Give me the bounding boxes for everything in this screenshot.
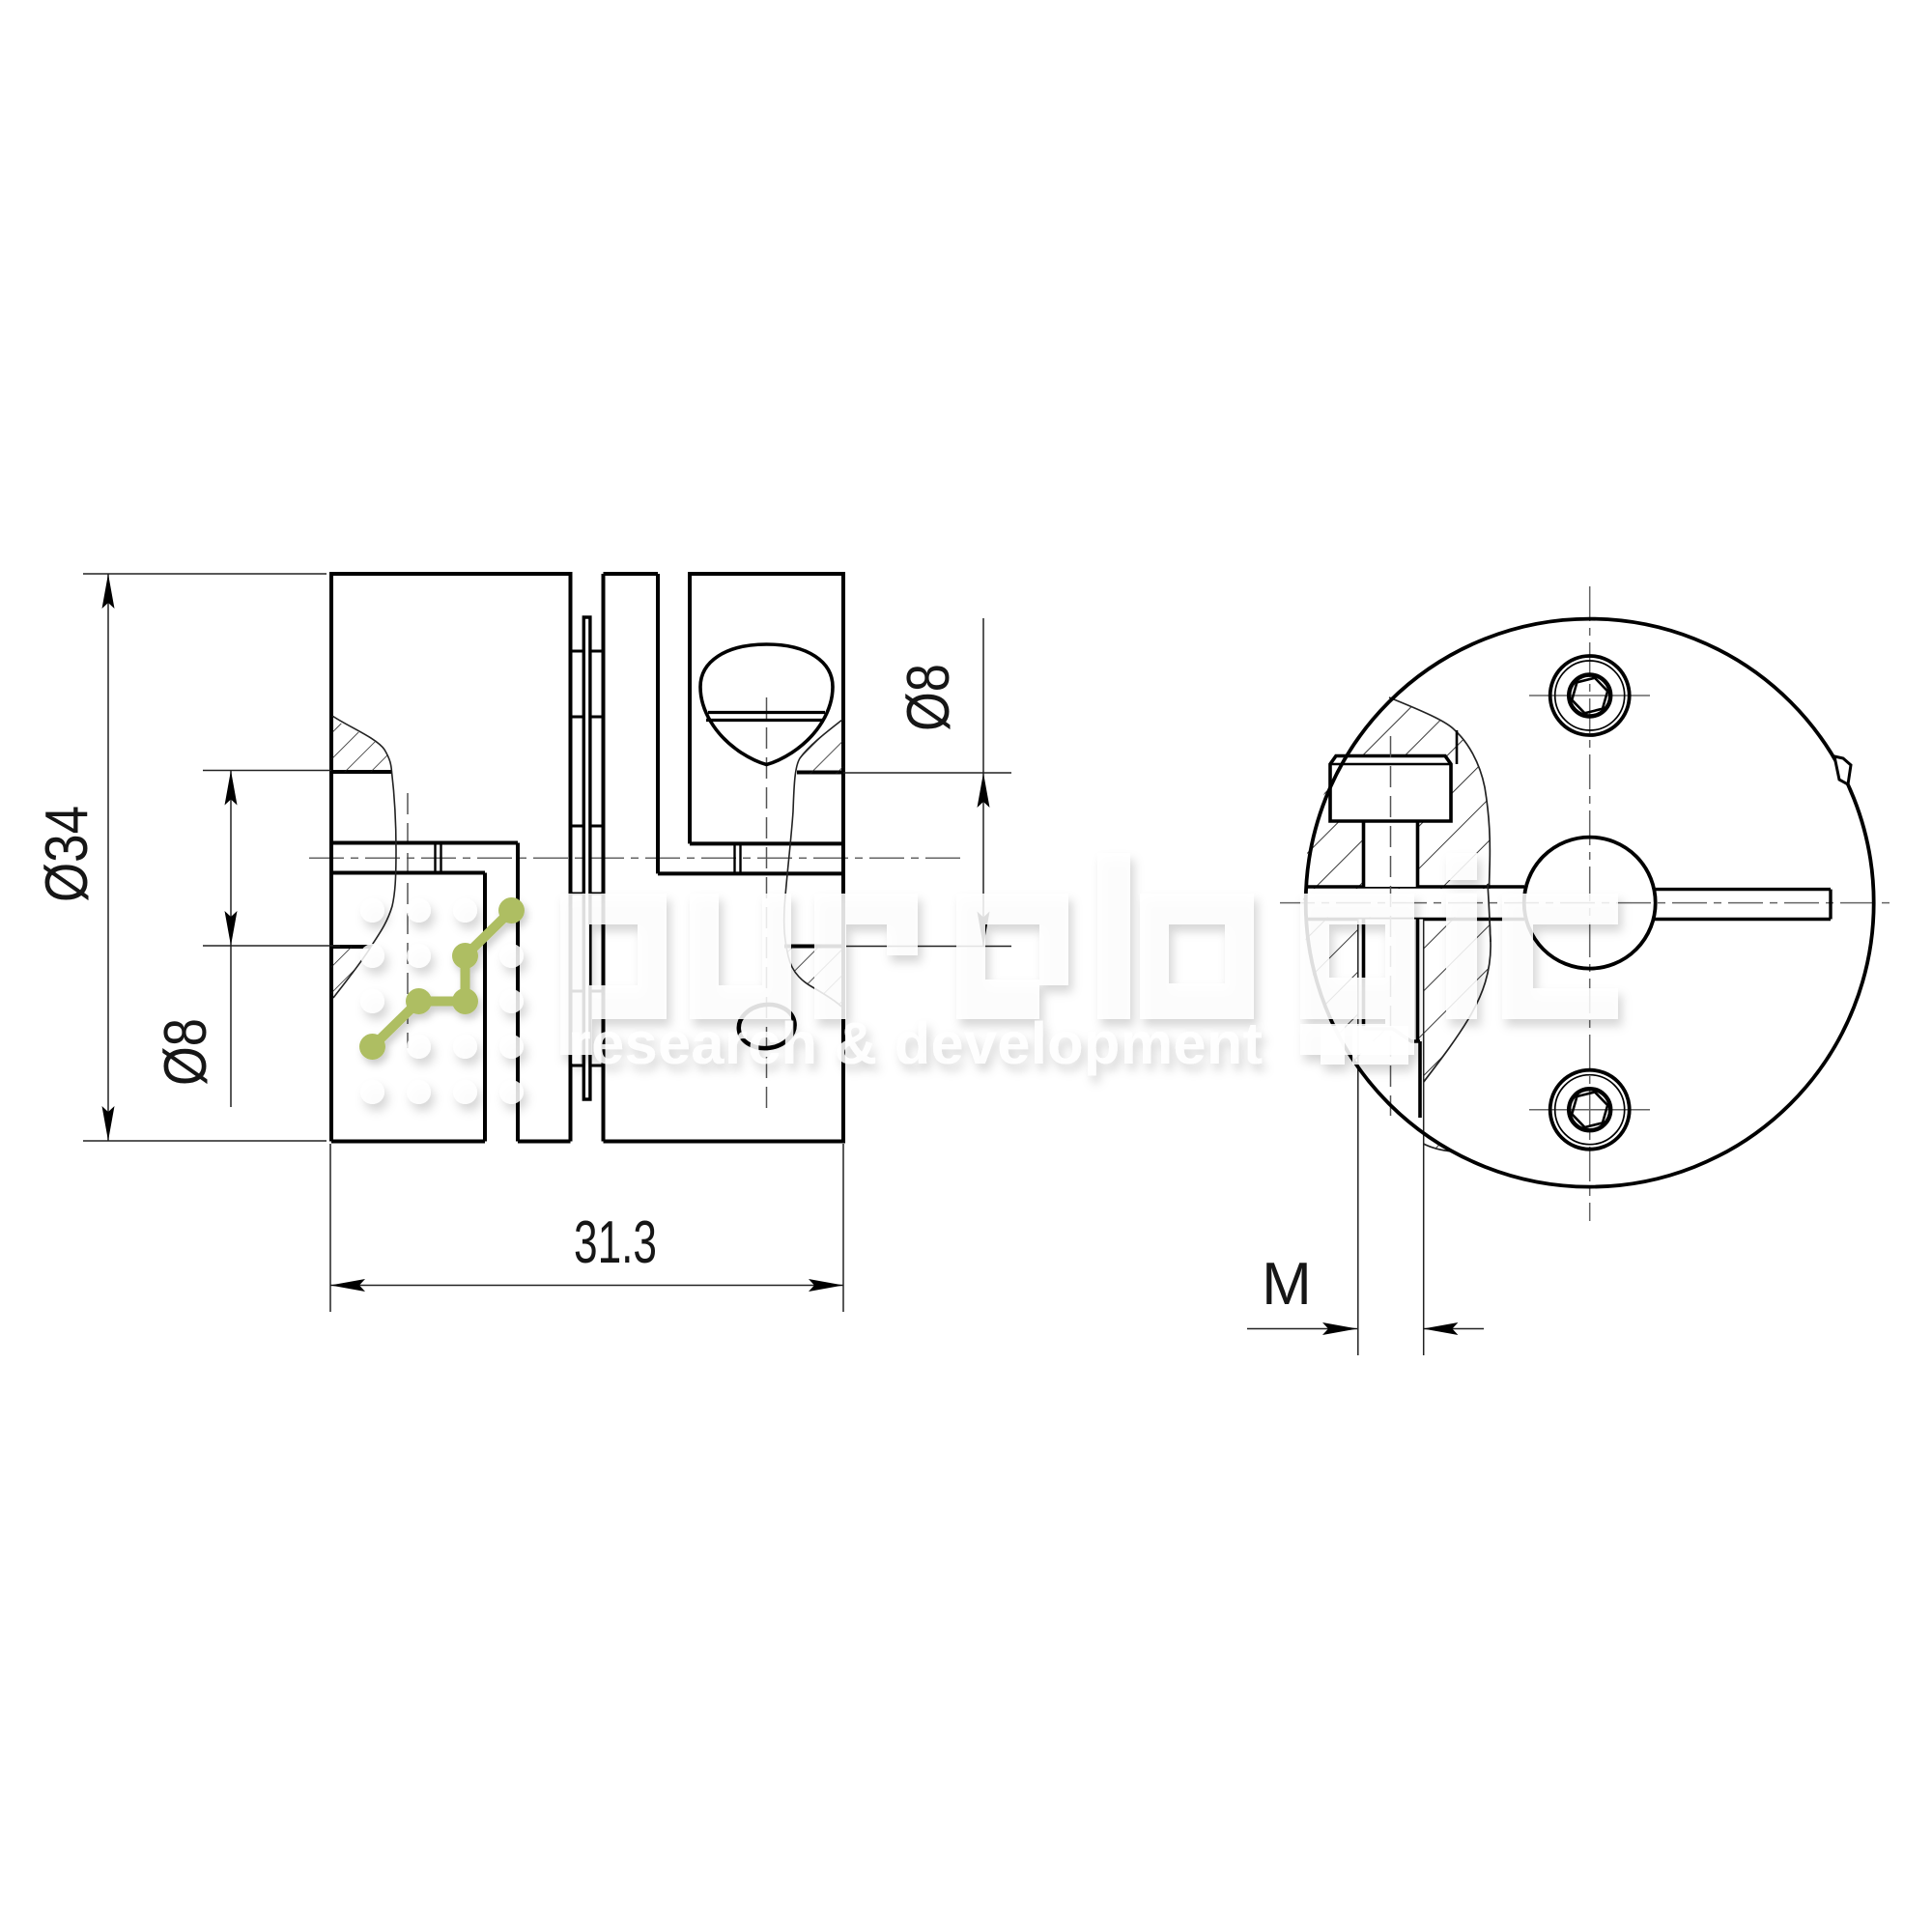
svg-text:research & development: research & development — [568, 1010, 1264, 1076]
